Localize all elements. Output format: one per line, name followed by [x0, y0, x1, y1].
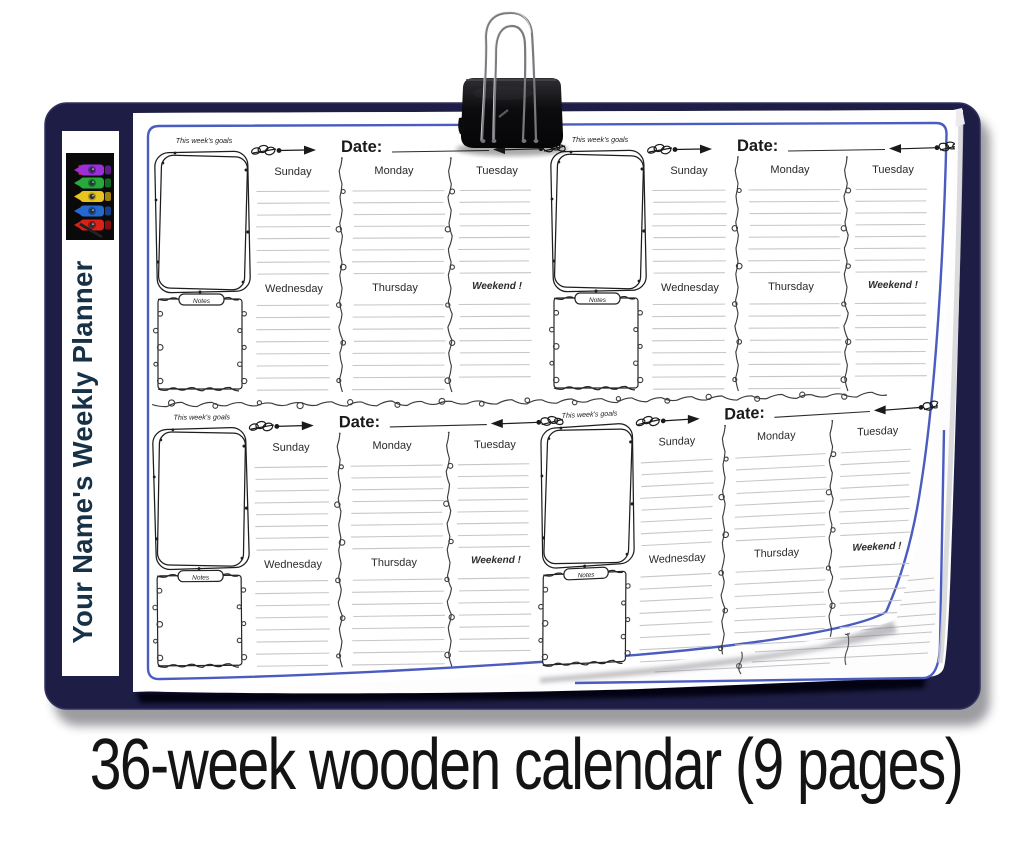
svg-text:Your Name's Weekly Planner: Your Name's Weekly Planner	[67, 260, 98, 643]
